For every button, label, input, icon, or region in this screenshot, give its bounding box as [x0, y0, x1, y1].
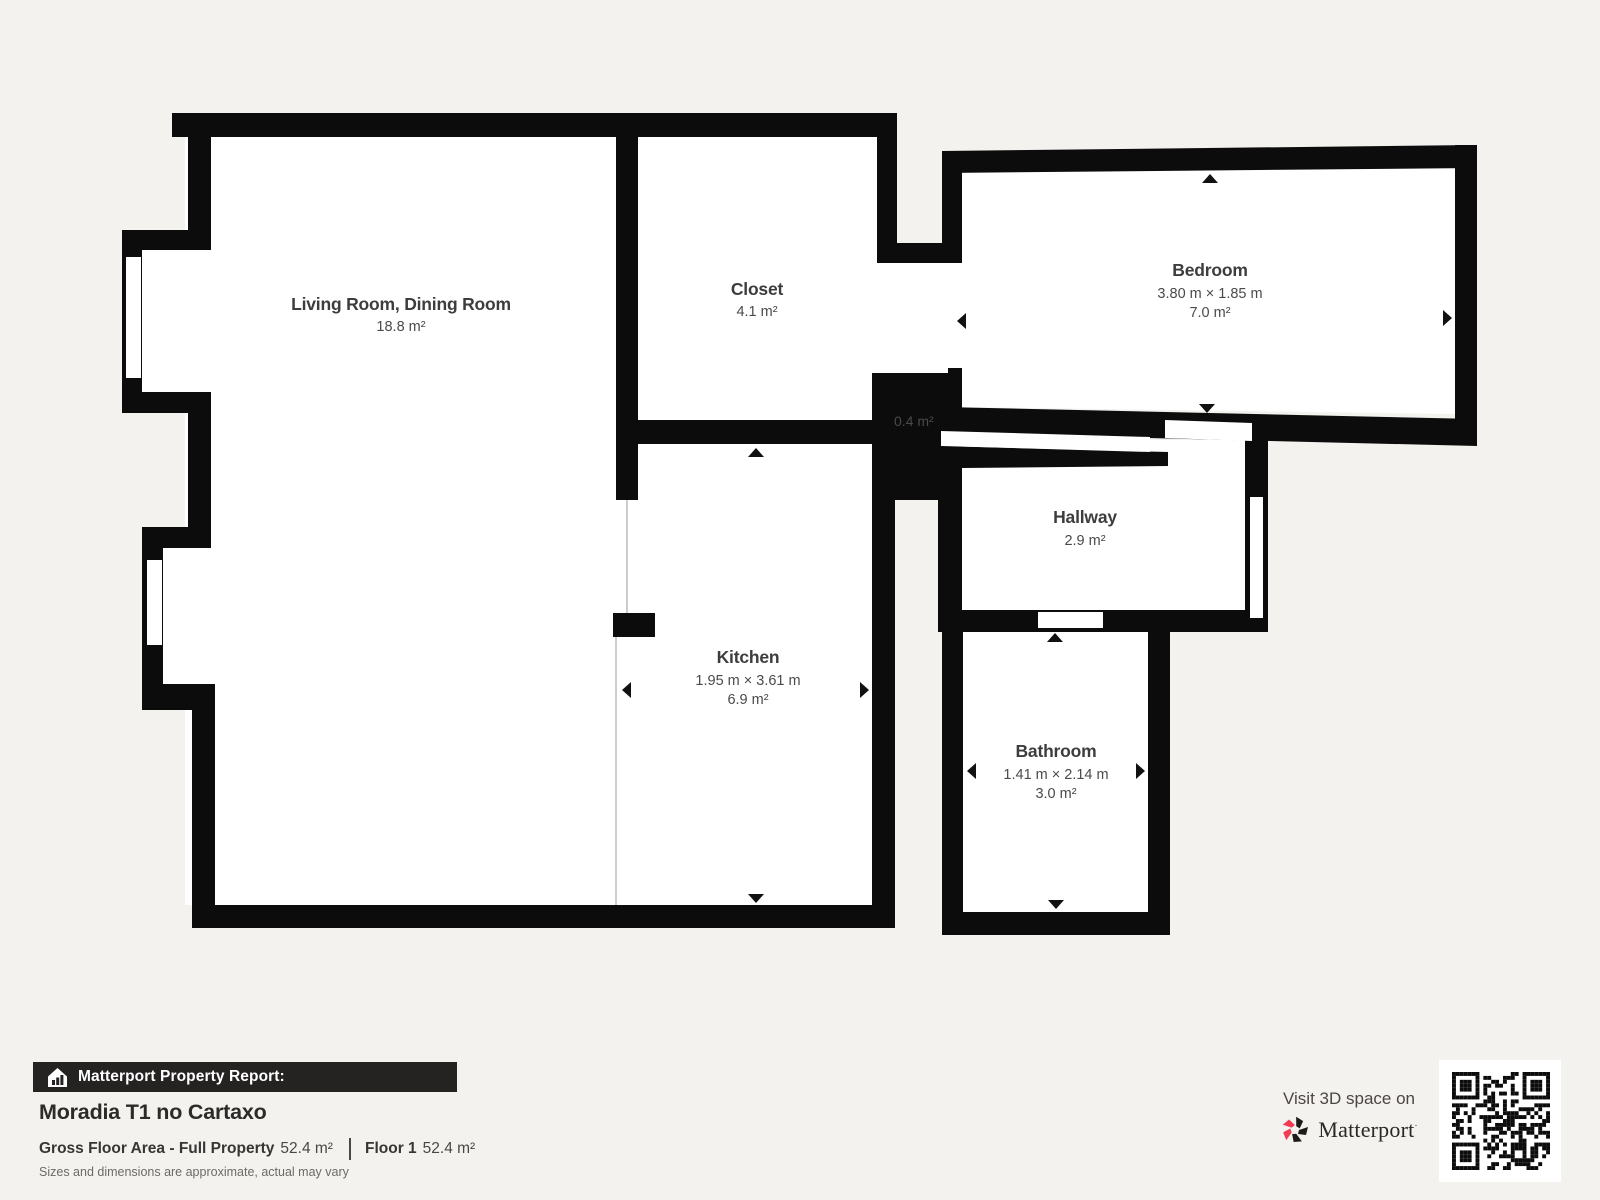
bathroom-area: 3.0 m² — [1035, 786, 1076, 802]
hallway-right-door-slot — [1250, 497, 1263, 618]
property-title: Moradia T1 no Cartaxo — [39, 1100, 267, 1125]
window-slot-2 — [147, 560, 162, 645]
trademark-mark: · — [1414, 1121, 1417, 1131]
gross-floor-area-label: Gross Floor Area - Full Property — [39, 1140, 274, 1158]
living-room-floor — [185, 137, 617, 905]
house-icon — [47, 1067, 68, 1088]
floor1-value: 52.4 m² — [423, 1140, 476, 1158]
bedroom-door-slot — [1165, 420, 1252, 441]
closet-area: 4.1 m² — [736, 304, 777, 320]
floor-plan: Living Room, Dining Room 18.8 m² Closet … — [0, 0, 1600, 1010]
bathroom-dims: 1.41 m × 2.14 m — [1003, 767, 1108, 783]
kitchen-dims: 1.95 m × 3.61 m — [695, 673, 800, 689]
living-room-label: Living Room, Dining Room — [291, 294, 511, 314]
living-room-bay1-floor — [140, 250, 190, 392]
visit-3d-text: Visit 3D space on — [1254, 1089, 1444, 1109]
floor1-label: Floor 1 — [365, 1140, 417, 1158]
floor-area-summary: Gross Floor Area - Full Property 52.4 m²… — [39, 1137, 475, 1161]
bathroom-door-slot — [1038, 612, 1103, 628]
gross-floor-area-value: 52.4 m² — [280, 1140, 333, 1158]
matterport-wordmark: Matterport· — [1318, 1117, 1417, 1143]
kitchen-label: Kitchen — [717, 647, 780, 667]
window-slot-1 — [126, 257, 141, 378]
bathroom-label: Bathroom — [1015, 741, 1096, 761]
living-room-area: 18.8 m² — [376, 319, 425, 335]
niche-area-label: 0.4 m² — [894, 413, 934, 429]
matterport-pinwheel-icon — [1280, 1115, 1310, 1145]
qr-code — [1439, 1060, 1561, 1182]
matterport-logo: Matterport· — [1254, 1114, 1444, 1146]
qr-code-modules — [1452, 1072, 1550, 1170]
report-banner-label: Matterport Property Report: — [78, 1068, 285, 1086]
living-room-bay2-floor — [161, 548, 197, 684]
report-banner: Matterport Property Report: — [33, 1062, 457, 1092]
bedroom-area: 7.0 m² — [1189, 305, 1230, 321]
kitchen-area: 6.9 m² — [727, 692, 768, 708]
bedroom-label: Bedroom — [1172, 260, 1247, 280]
disclaimer-text: Sizes and dimensions are approximate, ac… — [39, 1165, 349, 1179]
closet-label: Closet — [731, 279, 784, 299]
closet-pocket-floor — [877, 263, 962, 373]
hallway-label: Hallway — [1053, 507, 1117, 527]
hallway-area: 2.9 m² — [1064, 533, 1105, 549]
summary-divider — [349, 1138, 351, 1160]
bedroom-dims: 3.80 m × 1.85 m — [1157, 286, 1262, 302]
